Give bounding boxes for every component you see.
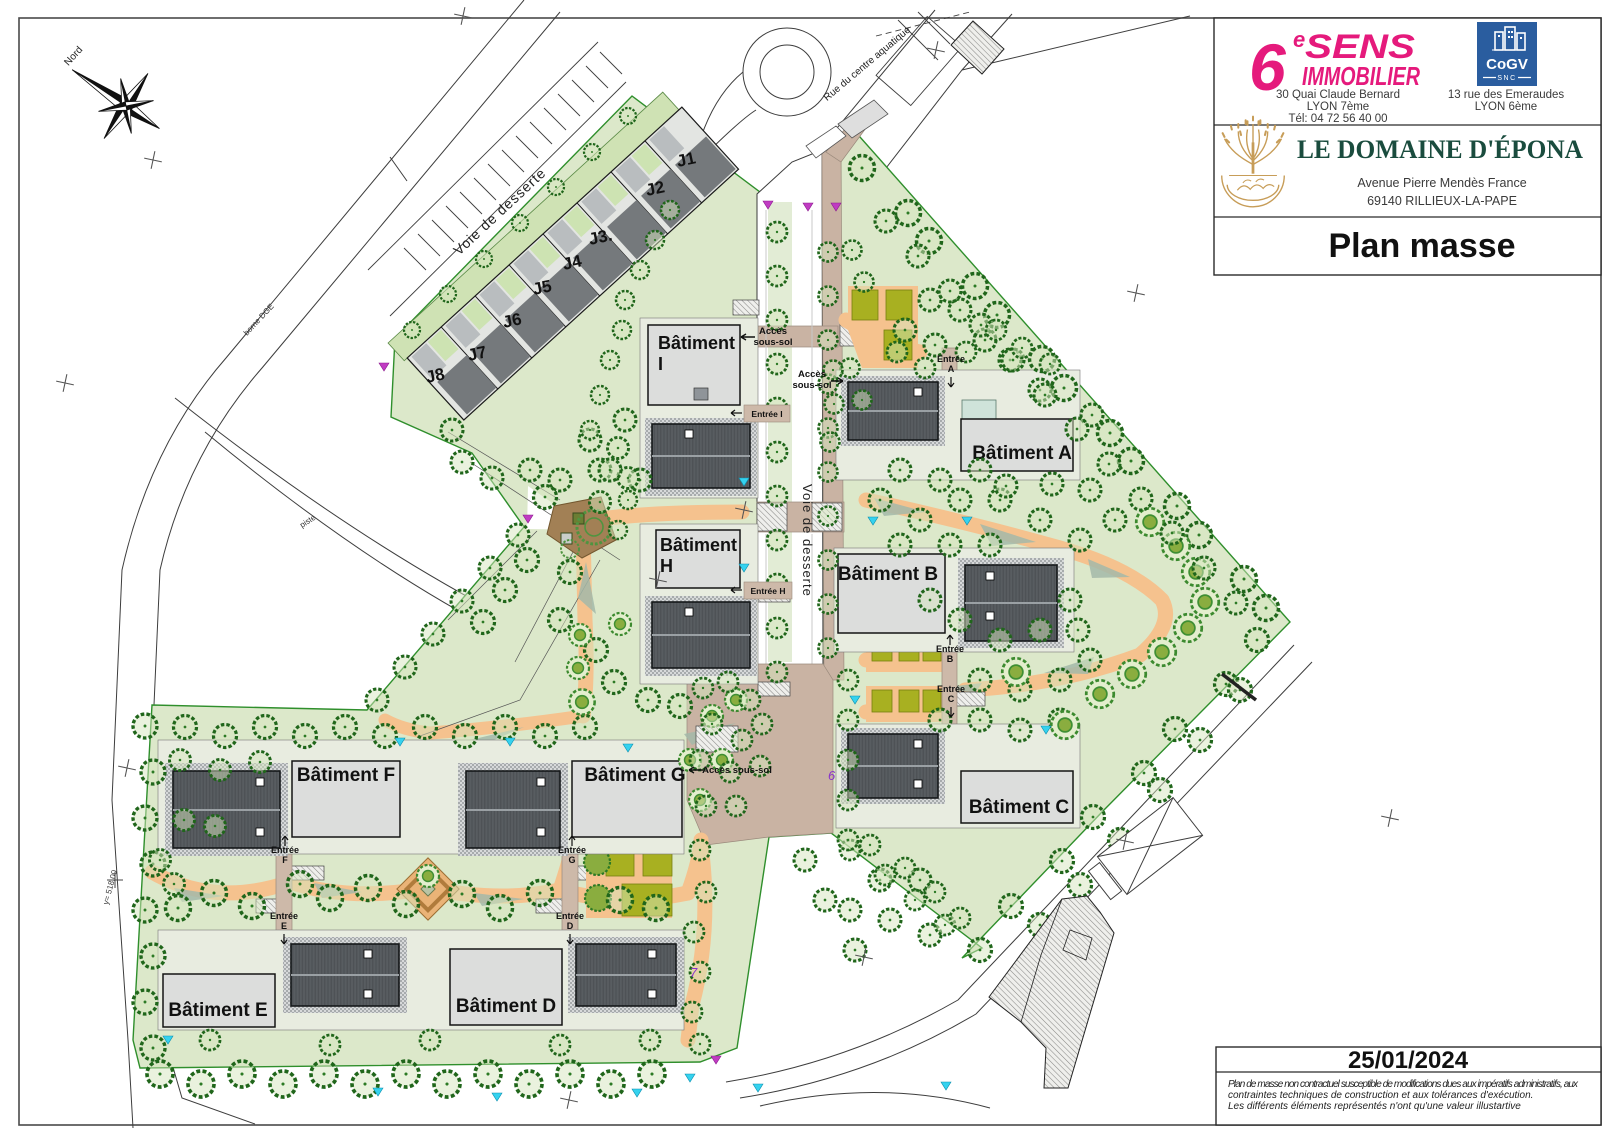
svg-text:Entrée: Entrée (558, 845, 586, 855)
svg-text:7: 7 (690, 965, 698, 980)
svg-text:Accès: Accès (759, 326, 787, 337)
svg-text:Bâtiment: Bâtiment (660, 535, 737, 555)
svg-text:J6: J6 (501, 309, 523, 332)
svg-text:y= 518.00: y= 518.00 (101, 868, 119, 905)
svg-text:C: C (948, 694, 955, 704)
svg-text:J1: J1 (675, 148, 697, 171)
svg-text:IMMOBILIER: IMMOBILIER (1302, 61, 1420, 91)
svg-text:Entrée H: Entrée H (751, 586, 786, 596)
svg-text:13 rue des Emeraudes: 13 rue des Emeraudes (1448, 89, 1565, 101)
svg-text:Nord: Nord (62, 45, 85, 69)
svg-text:Voie de desserte: Voie de desserte (800, 484, 815, 597)
svg-text:G: G (568, 855, 575, 865)
svg-text:Entrée: Entrée (271, 845, 299, 855)
svg-text:CoGV: CoGV (1486, 56, 1528, 73)
svg-text:Bâtiment E: Bâtiment E (168, 1000, 267, 1021)
svg-text:Les différents éléments représ: Les différents éléments représentés n'on… (1228, 1101, 1521, 1112)
svg-text:Accès sous-sol: Accès sous-sol (702, 765, 772, 776)
svg-text:F: F (282, 855, 288, 865)
svg-text:Entrée: Entrée (937, 684, 965, 694)
svg-text:Plan de masse non contractuel: Plan de masse non contractuel susceptibl… (1228, 1079, 1579, 1090)
svg-text:J5: J5 (531, 276, 553, 299)
svg-text:H: H (660, 556, 673, 576)
svg-text:Entrée I: Entrée I (751, 409, 782, 419)
svg-text:Bâtiment D: Bâtiment D (456, 996, 556, 1017)
svg-text:I: I (658, 354, 663, 374)
svg-text:Entrée: Entrée (937, 354, 965, 364)
svg-text:Entrée: Entrée (936, 644, 964, 654)
svg-text:D: D (567, 921, 574, 931)
svg-text:Entrée: Entrée (556, 911, 584, 921)
svg-text:30 Quai Claude Bernard: 30 Quai Claude Bernard (1276, 89, 1400, 101)
svg-text:Bâtiment: Bâtiment (658, 333, 735, 353)
svg-text:Plan masse: Plan masse (1328, 227, 1515, 265)
svg-text:Avenue Pierre Mendès France: Avenue Pierre Mendès France (1357, 176, 1526, 190)
svg-text:B: B (947, 654, 954, 664)
svg-text:Bâtiment F: Bâtiment F (297, 765, 395, 786)
svg-text:6: 6 (828, 768, 836, 783)
svg-text:Bâtiment G: Bâtiment G (584, 765, 685, 786)
svg-text:borne DGE: borne DGE (242, 302, 276, 337)
svg-text:LYON 7ème: LYON 7ème (1307, 101, 1369, 113)
svg-text:sous-sol: sous-sol (753, 337, 792, 348)
svg-text:LE DOMAINE D'ÉPONA: LE DOMAINE D'ÉPONA (1297, 135, 1583, 164)
svg-text:Bâtiment C: Bâtiment C (969, 797, 1070, 818)
svg-text:Accès: Accès (798, 369, 826, 380)
svg-text:sous-sol: sous-sol (792, 380, 831, 391)
svg-text:J8: J8 (424, 364, 446, 387)
svg-text:25/01/2024: 25/01/2024 (1348, 1047, 1469, 1074)
svg-text:piste: piste (298, 513, 318, 530)
svg-text:e: e (1293, 27, 1305, 52)
svg-text:Entrée: Entrée (270, 911, 298, 921)
svg-text:contraintes techniques de cons: contraintes techniques de construction e… (1228, 1090, 1533, 1101)
svg-text:LYON 6ème: LYON 6ème (1475, 101, 1537, 113)
svg-text:J2: J2 (644, 177, 666, 200)
svg-text:J7: J7 (466, 342, 488, 365)
svg-text:A: A (948, 364, 955, 374)
svg-text:SNC: SNC (1497, 75, 1516, 82)
svg-text:69140 RILLIEUX-LA-PAPE: 69140 RILLIEUX-LA-PAPE (1367, 194, 1517, 208)
svg-text:Bâtiment B: Bâtiment B (838, 564, 938, 585)
svg-text:E: E (281, 921, 287, 931)
svg-text:Tél: 04 72 56 40 00: Tél: 04 72 56 40 00 (1288, 113, 1387, 125)
